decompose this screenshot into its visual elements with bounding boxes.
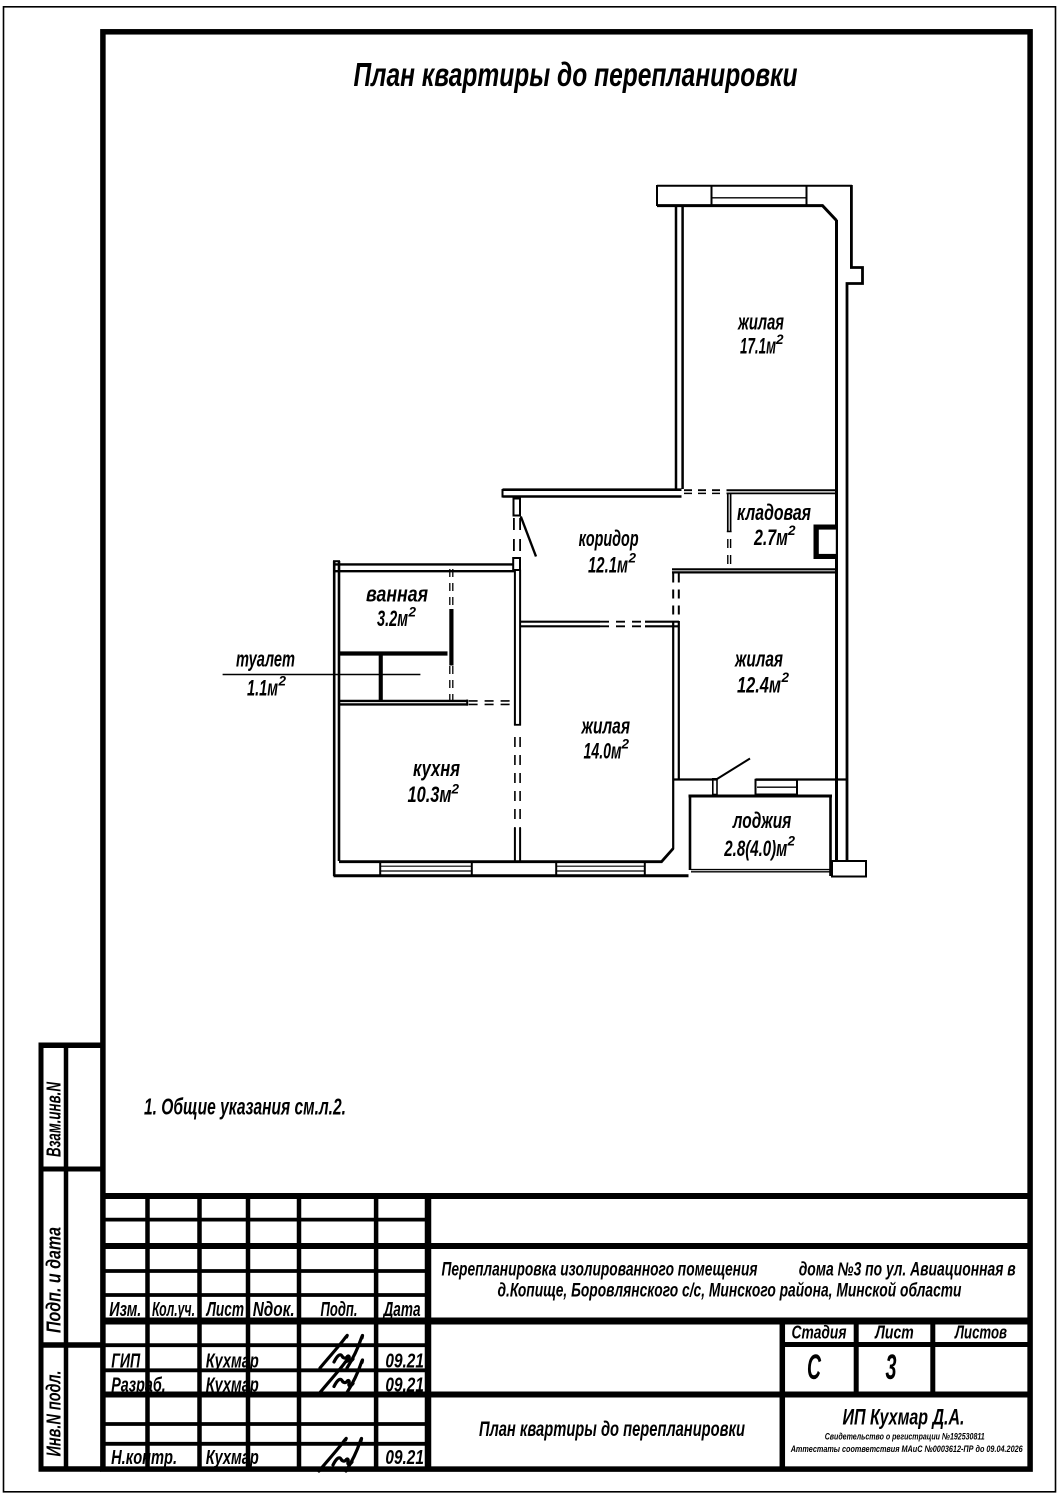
- svg-text:Свидетельство о регистрации №: Свидетельство о регистрации №192530811: [825, 1432, 985, 1443]
- svg-text:2: 2: [621, 737, 630, 752]
- svg-text:2: 2: [781, 670, 790, 685]
- svg-text:Перепланировка изолированного: Перепланировка изолированного помещения: [442, 1260, 758, 1281]
- svg-text:09.21: 09.21: [385, 1374, 424, 1396]
- svg-text:Н.контр.: Н.контр.: [111, 1447, 177, 1469]
- svg-text:Инв.N подл.: Инв.N подл.: [44, 1371, 66, 1457]
- svg-text:кухня: кухня: [413, 756, 460, 781]
- svg-text:дома №3 по ул. Авиационная в: дома №3 по ул. Авиационная в: [799, 1260, 1016, 1281]
- svg-text:Подп. и дата: Подп. и дата: [44, 1227, 66, 1333]
- svg-text:2.8(4.0)м: 2.8(4.0)м: [724, 836, 788, 861]
- svg-text:Лист: Лист: [874, 1323, 914, 1343]
- svg-text:2.7м: 2.7м: [753, 525, 788, 550]
- svg-text:кладовая: кладовая: [737, 500, 811, 525]
- svg-text:Разраб.: Разраб.: [111, 1374, 166, 1396]
- svg-text:3: 3: [886, 1348, 897, 1387]
- svg-text:1.1м: 1.1м: [247, 676, 278, 701]
- svg-text:2: 2: [451, 782, 460, 797]
- svg-text:туалет: туалет: [236, 647, 295, 672]
- svg-text:2: 2: [787, 523, 796, 538]
- svg-text:2: 2: [787, 834, 796, 849]
- svg-text:жилая: жилая: [737, 310, 784, 335]
- svg-text:14.0м: 14.0м: [584, 739, 622, 764]
- svg-text:17.1м: 17.1м: [740, 334, 776, 359]
- svg-text:Лист: Лист: [205, 1299, 244, 1321]
- svg-text:12.4м: 12.4м: [737, 673, 781, 698]
- svg-text:2: 2: [628, 551, 637, 566]
- svg-text:Взам.инв.N: Взам.инв.N: [44, 1082, 66, 1157]
- svg-text:10.3м: 10.3м: [408, 782, 452, 807]
- svg-text:09.21: 09.21: [385, 1447, 424, 1469]
- svg-text:2: 2: [408, 605, 417, 620]
- svg-text:Nдок.: Nдок.: [253, 1299, 295, 1321]
- svg-text:План квартиры до перепланировк: План квартиры до перепланировки: [354, 57, 798, 94]
- svg-text:д.Копище, Боровлянского с/с, М: д.Копище, Боровлянского с/с, Минского ра…: [498, 1281, 962, 1302]
- svg-text:ванная: ванная: [366, 582, 428, 607]
- svg-text:Стадия: Стадия: [792, 1323, 847, 1343]
- svg-text:Кухмар: Кухмар: [206, 1447, 259, 1469]
- svg-text:План квартиры до перепланировк: План квартиры до перепланировки: [479, 1418, 745, 1441]
- svg-text:Кухмар: Кухмар: [206, 1350, 259, 1372]
- svg-text:ИП Кухмар Д.А.: ИП Кухмар Д.А.: [843, 1405, 965, 1430]
- svg-text:1. Общие указания см.л.2.: 1. Общие указания см.л.2.: [144, 1094, 346, 1120]
- svg-text:ГИП: ГИП: [111, 1350, 140, 1372]
- svg-text:Листов: Листов: [954, 1323, 1008, 1343]
- svg-text:Кол.уч.: Кол.уч.: [152, 1299, 195, 1321]
- svg-text:Изм.: Изм.: [109, 1299, 141, 1321]
- svg-text:2: 2: [278, 674, 287, 689]
- svg-text:3.2м: 3.2м: [377, 606, 408, 631]
- svg-text:Аттестаты соответствия МАиС №: Аттестаты соответствия МАиС №0003612-ПР …: [790, 1444, 1023, 1455]
- svg-text:лоджия: лоджия: [732, 808, 791, 833]
- svg-text:жилая: жилая: [734, 647, 783, 672]
- svg-text:С: С: [807, 1348, 821, 1387]
- svg-text:жилая: жилая: [580, 714, 630, 739]
- svg-text:Дата: Дата: [382, 1299, 420, 1321]
- svg-text:09.21: 09.21: [385, 1350, 424, 1372]
- svg-text:Подп.: Подп.: [321, 1299, 358, 1321]
- svg-text:2: 2: [775, 332, 784, 347]
- svg-text:12.1м: 12.1м: [588, 553, 628, 578]
- svg-text:Кухмар: Кухмар: [206, 1374, 259, 1396]
- svg-text:коридор: коридор: [579, 526, 639, 551]
